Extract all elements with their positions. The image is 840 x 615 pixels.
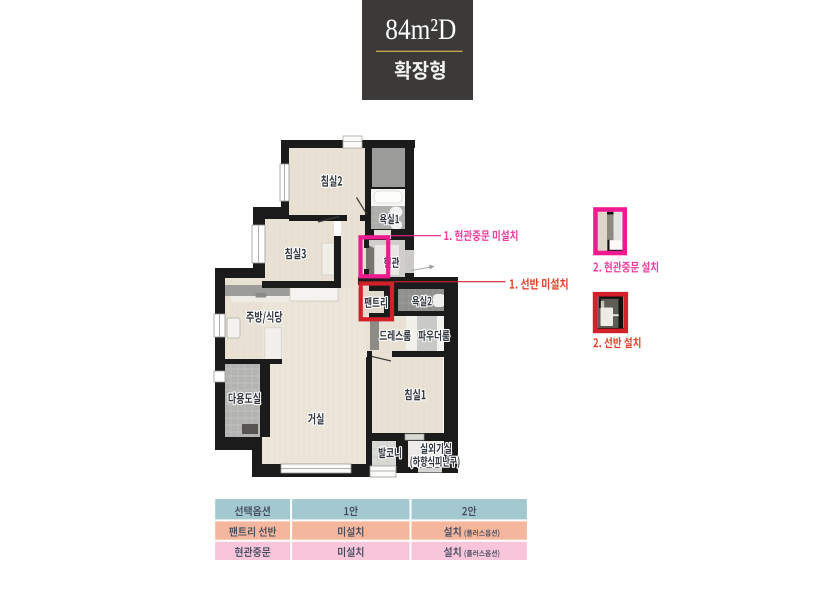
svg-text:84m²D: 84m²D xyxy=(385,13,456,46)
